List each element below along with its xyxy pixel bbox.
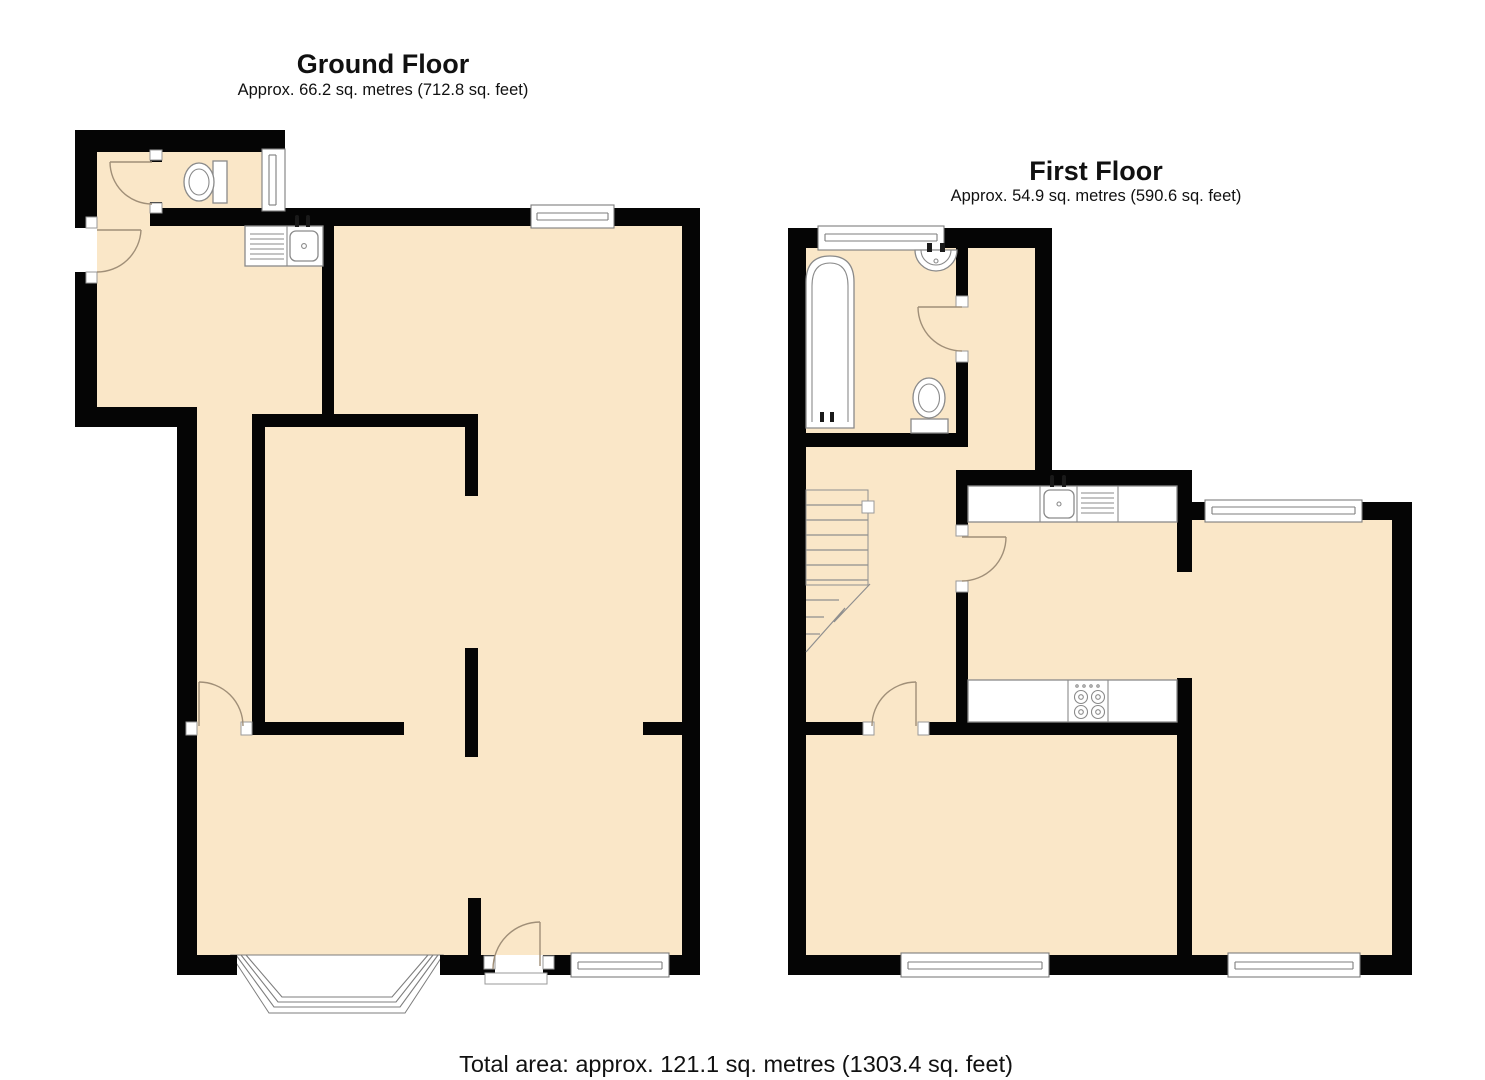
wc-side-window [262, 149, 285, 211]
first-floor-plan [788, 226, 1412, 977]
toilet-symbol [184, 161, 227, 203]
floorplan-page: Ground Floor Approx. 66.2 sq. metres (71… [0, 0, 1485, 1080]
bathroom-wall-lower [956, 362, 968, 433]
kitchen-wall-lower [956, 592, 968, 734]
right-top-window [1205, 500, 1362, 522]
ground-floor-title: Ground Floor [297, 49, 470, 79]
bottom-window [571, 953, 669, 977]
kitchen-reception-floor [97, 226, 682, 427]
stove-hob-symbol [968, 680, 1177, 722]
dining-left-wall [252, 414, 265, 735]
bathroom-bottom-wall [788, 433, 968, 447]
dining-top-wall [252, 414, 478, 427]
floorplan-image: Ground Floor Approx. 66.2 sq. metres (71… [0, 0, 1485, 1080]
ground-floor-subtitle: Approx. 66.2 sq. metres (712.8 sq. feet) [238, 81, 529, 99]
landing-bedroom-floor [806, 447, 968, 955]
bay-window [231, 955, 443, 1013]
kitchen-wall-upper [956, 470, 968, 525]
bottom-right-window [1228, 953, 1360, 977]
first-floor-subtitle: Approx. 54.9 sq. metres (590.6 sq. feet) [951, 187, 1242, 205]
first-floor-title: First Floor [1029, 156, 1163, 186]
ground-floor-plan [75, 130, 700, 1013]
bottom-left-window [901, 953, 1049, 977]
right-bedroom-floor [1192, 520, 1392, 955]
bathroom-wall-upper [956, 248, 968, 296]
bathroom-top-window [818, 226, 944, 250]
total-area-label: Total area: approx. 121.1 sq. metres (13… [459, 1051, 1013, 1077]
lower-rooms-floor [197, 420, 682, 955]
kitchen-divider-wall [322, 226, 334, 418]
first-floor-rooms [806, 248, 1392, 955]
toilet-symbol-ff [911, 378, 948, 433]
bathtub-symbol [806, 256, 854, 428]
top-window [531, 205, 614, 228]
